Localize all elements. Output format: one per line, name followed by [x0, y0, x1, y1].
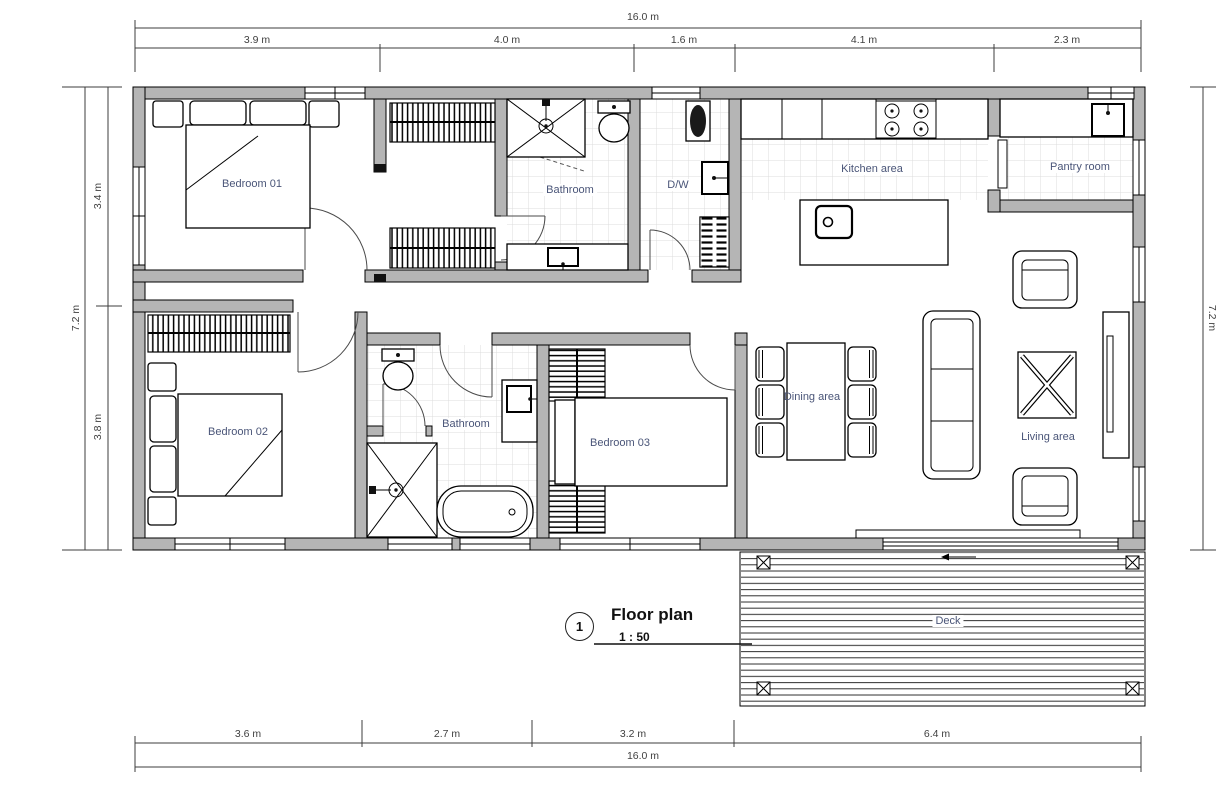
nightstand: [148, 363, 176, 391]
view-title: Floor plan: [611, 605, 693, 625]
pillow: [190, 101, 246, 125]
bedroom-03-furniture: [549, 349, 727, 533]
pillow: [250, 101, 306, 125]
shower-head: [369, 486, 376, 494]
island-sink: [816, 206, 852, 238]
dining-table: [787, 343, 845, 460]
chair: [756, 423, 784, 457]
chair: [848, 385, 876, 419]
chair: [756, 385, 784, 419]
chair: [756, 347, 784, 381]
deck: [740, 552, 1145, 706]
view-number-badge: 1: [565, 612, 594, 641]
bedroom-01-furniture: [153, 101, 339, 228]
shower-head: [542, 99, 550, 106]
pillow: [150, 396, 176, 442]
nightstand: [148, 497, 176, 525]
sliding-door-to-deck: [883, 538, 1118, 550]
nightstand: [309, 101, 339, 127]
living-furniture: [923, 251, 1129, 525]
pillow: [150, 446, 176, 492]
sofa: [923, 311, 980, 479]
floor-plan-drawing: [0, 0, 1232, 802]
view-scale: 1 : 50: [619, 630, 650, 644]
floor-plan: Bedroom 01 Bathroom D/W Kitchen area Pan…: [0, 0, 1232, 802]
closet-wardrobes: [390, 103, 495, 268]
chair: [848, 347, 876, 381]
nightstand: [153, 101, 183, 127]
double-bed: [178, 394, 282, 496]
double-bed: [575, 398, 727, 486]
pantry-fixtures: [1000, 99, 1133, 137]
kitchen-counter: [741, 99, 988, 139]
pantry-door: [998, 140, 1007, 188]
bedroom-02-furniture: [148, 315, 290, 525]
dining-furniture: [756, 343, 876, 460]
chair: [848, 423, 876, 457]
headboard: [555, 400, 575, 484]
